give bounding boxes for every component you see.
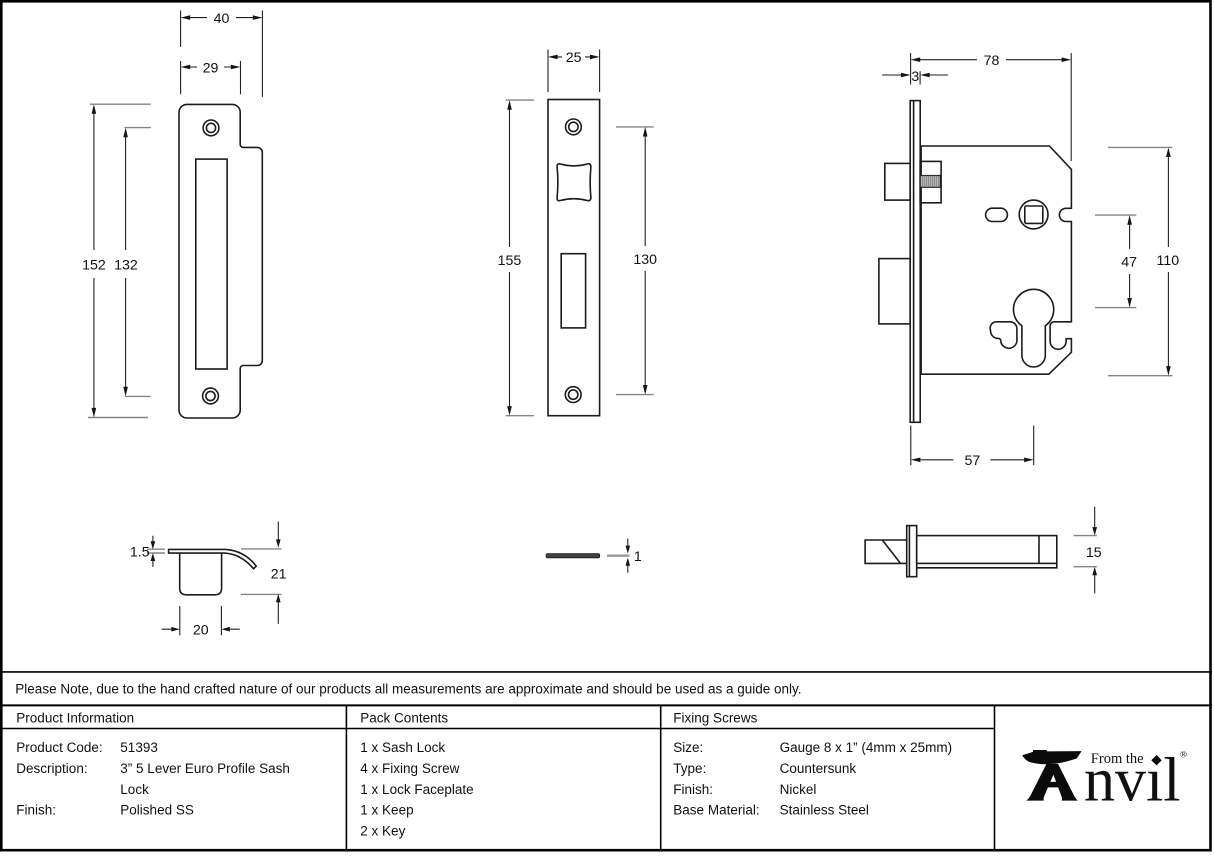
svg-text:3: 3 (911, 69, 919, 85)
svg-text:Lock: Lock (120, 782, 149, 797)
svg-text:21: 21 (271, 566, 287, 582)
svg-text:Nickel: Nickel (780, 782, 817, 797)
svg-text:51393: 51393 (120, 740, 158, 755)
svg-text:Pack Contents: Pack Contents (360, 710, 448, 725)
svg-text:3” 5 Lever Euro Profile Sash: 3” 5 Lever Euro Profile Sash (120, 761, 290, 776)
svg-text:15: 15 (1086, 545, 1102, 561)
svg-text:20: 20 (193, 622, 209, 638)
svg-text:1.5: 1.5 (130, 545, 150, 561)
svg-text:1: 1 (634, 549, 642, 565)
svg-text:29: 29 (203, 60, 219, 76)
svg-text:Finish:: Finish: (16, 803, 56, 818)
svg-text:152: 152 (82, 258, 106, 274)
svg-text:57: 57 (965, 453, 981, 469)
svg-text:78: 78 (984, 53, 1000, 69)
svg-text:Finish:: Finish: (673, 782, 713, 797)
svg-text:Polished SS: Polished SS (120, 803, 194, 818)
svg-text:Please Note, due to the hand c: Please Note, due to the hand crafted nat… (15, 681, 801, 696)
svg-text:Countersunk: Countersunk (780, 761, 857, 776)
svg-text:®: ® (1180, 750, 1187, 760)
svg-text:Base Material:: Base Material: (673, 803, 759, 818)
svg-text:132: 132 (114, 258, 138, 274)
svg-text:1 x Keep: 1 x Keep (360, 803, 413, 818)
svg-text:1 x Sash Lock: 1 x Sash Lock (360, 740, 445, 755)
svg-text:Type:: Type: (673, 761, 706, 776)
svg-text:Fixing Screws: Fixing Screws (673, 710, 757, 725)
svg-text:nvıl: nvıl (1084, 747, 1180, 815)
svg-text:Product Information: Product Information (16, 710, 134, 725)
svg-text:2 x Key: 2 x Key (360, 823, 405, 838)
svg-text:Product Code:: Product Code: (16, 740, 102, 755)
svg-text:4 x Fixing Screw: 4 x Fixing Screw (360, 761, 459, 776)
svg-text:Stainless Steel: Stainless Steel (780, 803, 869, 818)
svg-text:130: 130 (633, 252, 657, 268)
svg-text:1 x Lock Faceplate: 1 x Lock Faceplate (360, 782, 473, 797)
svg-text:25: 25 (566, 50, 582, 66)
svg-text:155: 155 (498, 253, 522, 269)
svg-text:Description:: Description: (16, 761, 87, 776)
svg-text:110: 110 (1156, 253, 1179, 269)
svg-text:Gauge 8 x 1” (4mm x 25mm): Gauge 8 x 1” (4mm x 25mm) (780, 740, 953, 755)
svg-text:Size:: Size: (673, 740, 703, 755)
svg-text:40: 40 (214, 11, 230, 27)
svg-text:47: 47 (1121, 254, 1137, 270)
